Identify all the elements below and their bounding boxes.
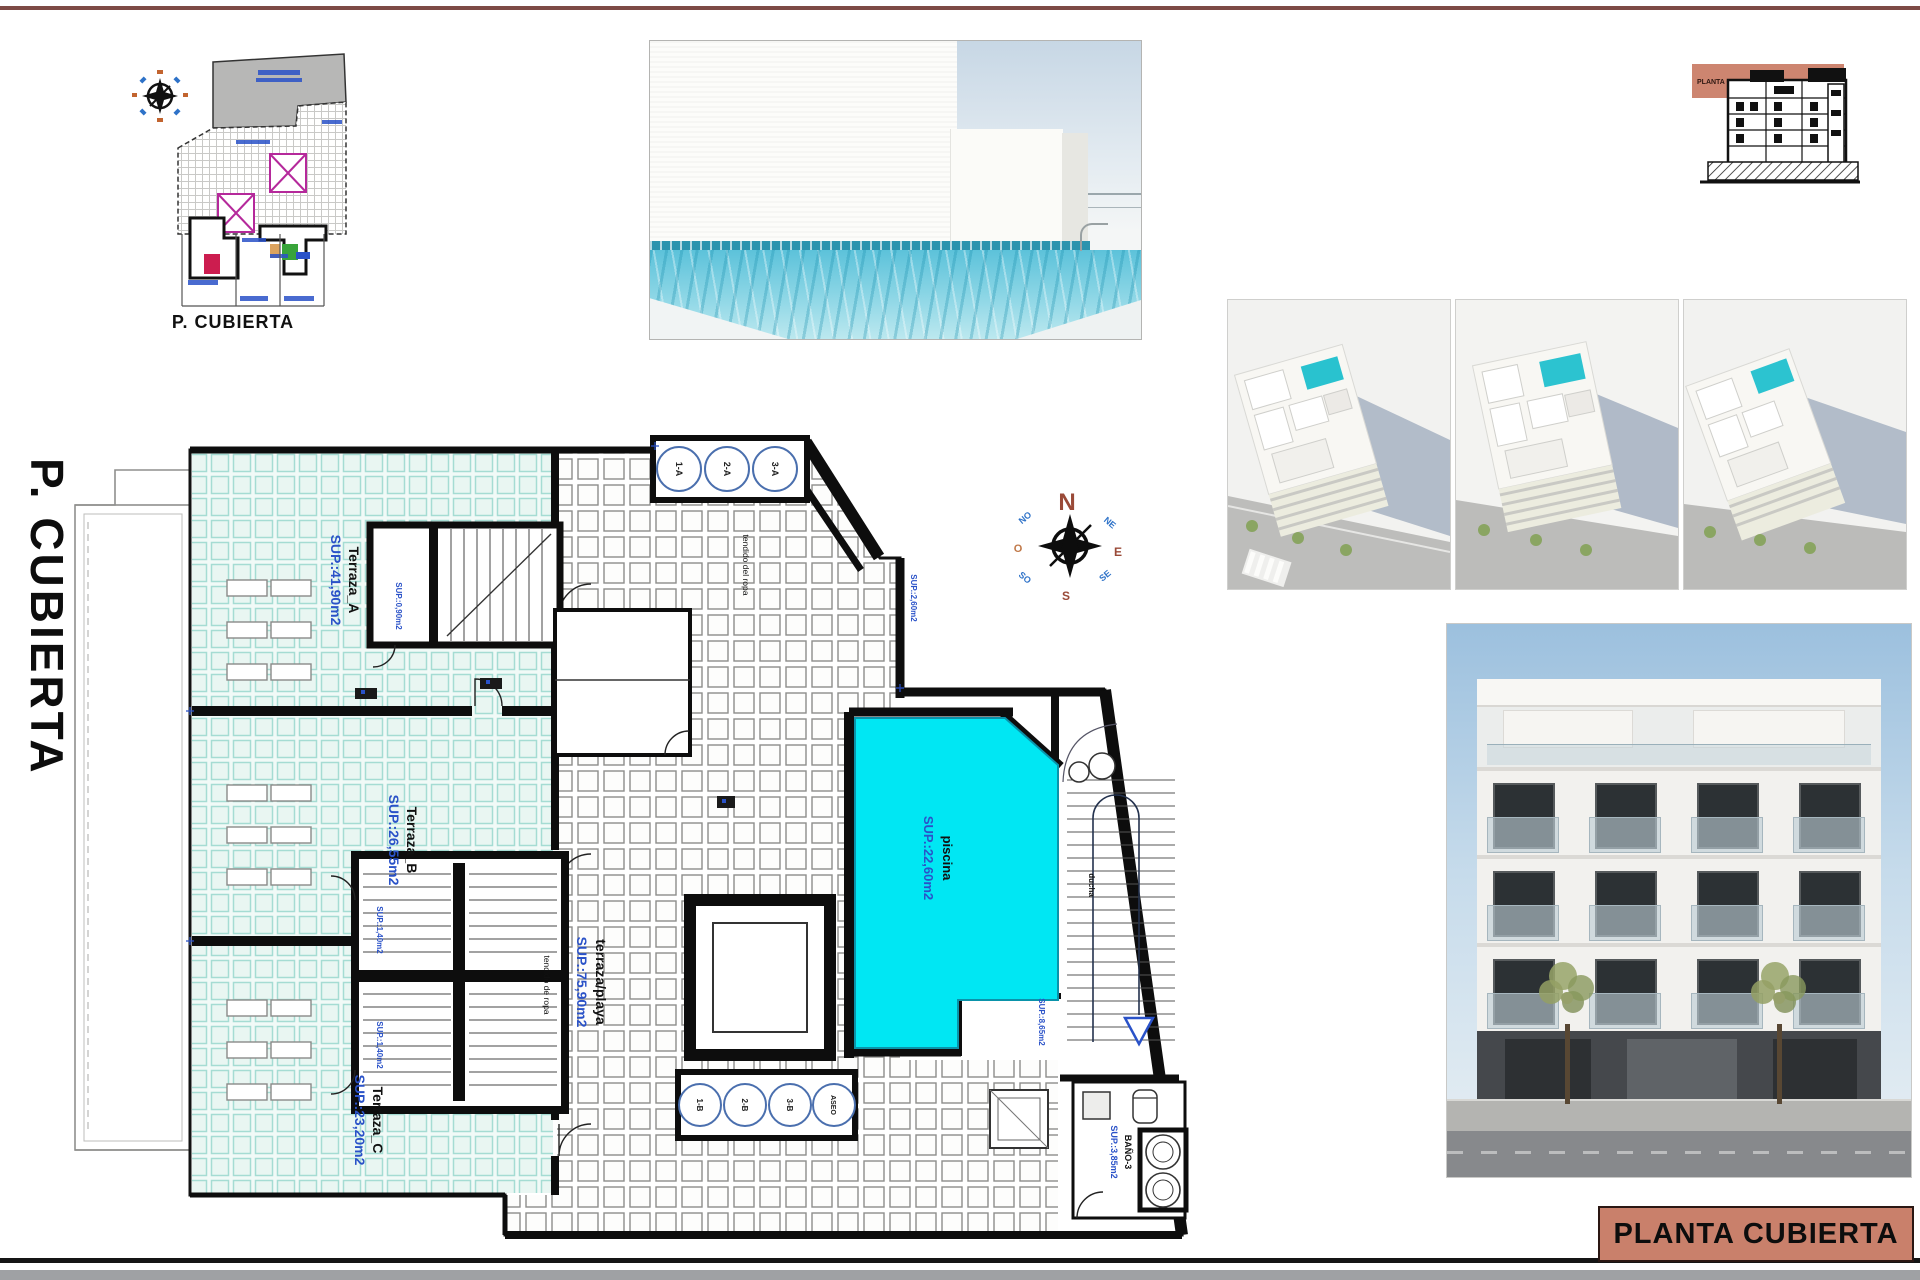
vent-circles-b: 1-B 2-B 3-B ASEO — [678, 1072, 855, 1138]
tree — [1777, 1024, 1782, 1104]
vent-label: 3-A — [770, 462, 780, 477]
svg-text:SUP.:75,90m2: SUP.:75,90m2 — [574, 937, 590, 1028]
svg-text:terraza/playa: terraza/playa — [593, 939, 609, 1025]
vent-label: 2-A — [722, 462, 732, 477]
stair-core-top: SUP.:0,90m2 — [370, 525, 560, 667]
top-border-rule — [0, 6, 1920, 10]
svg-text:SUP.:23,20m2: SUP.:23,20m2 — [352, 1075, 368, 1166]
render-white-wall — [650, 41, 957, 273]
vent-label: 1-B — [695, 1099, 704, 1112]
compass-ne-label: NE — [1102, 515, 1118, 531]
aerial-render-3 — [1683, 299, 1907, 590]
walkway-area-label: SUP.:2,60m2 — [909, 574, 918, 622]
svg-text:Terraza_B: Terraza_B — [404, 807, 420, 874]
tree-canopy — [1773, 992, 1785, 1004]
facade-floor-4 — [1477, 767, 1881, 859]
aerial-svg-3 — [1684, 300, 1906, 589]
stair-mid-upper-area-label: SUP.:1,40m2 — [375, 906, 384, 954]
facade-ground-floor — [1477, 1031, 1881, 1099]
pool-name-label: piscina — [940, 836, 955, 882]
bathroom: BAÑO-3 SUP.:3,85m2 — [1073, 1082, 1186, 1218]
shower-label: ducha — [1087, 873, 1096, 897]
aerial-svg-2 — [1456, 300, 1678, 589]
site-plan-caption: P. CUBIERTA — [118, 312, 348, 333]
stair-top-area-label: SUP.:0,90m2 — [394, 582, 403, 630]
facade-attic-railing — [1487, 744, 1871, 765]
render-stair-head-cube — [950, 129, 1063, 247]
svg-text:SUP.:26,55m2: SUP.:26,55m2 — [386, 795, 402, 886]
aerial-render-2 — [1455, 299, 1679, 590]
bottom-gray-bar — [0, 1270, 1920, 1280]
building-section-drawing: PLANTA CUBIERTA — [1690, 46, 1866, 188]
compass-north-label: N — [1058, 489, 1075, 516]
sheet-title: PLANTA CUBIERTA — [1613, 1218, 1898, 1251]
site-marker-blue — [296, 252, 310, 259]
compass-nw-label: NO — [1017, 510, 1034, 526]
pool: piscina SUP.:22,60m2 — [855, 718, 1058, 1048]
aerial-render-1 — [1227, 299, 1451, 590]
compass-rose: N S E O NO NE SO SE — [1014, 489, 1122, 603]
bathroom-area-label: SUP.:3,85m2 — [1109, 1125, 1119, 1178]
render-glass-rail — [1088, 193, 1141, 195]
facade-road — [1447, 1131, 1911, 1177]
drawing-sheet: { "sheet": { "margin_title": "P. CUBIERT… — [0, 0, 1920, 1280]
stair-mid-lower-area-label: SUP.:1,40m2 — [375, 1021, 384, 1069]
facade-attic-volume — [1693, 710, 1845, 748]
pool-area-label: SUP.:22,60m2 — [921, 816, 936, 900]
rooftop-pool-render — [649, 40, 1142, 340]
compass-east-label: E — [1114, 545, 1122, 559]
vent-label: ASEO — [829, 1095, 836, 1115]
roof-floor-plan: SUP.:0,90m2 SUP.:1,40m2 SUP.:1,40m2 1-A — [55, 430, 1190, 1245]
render-pool-waterline-tiles — [650, 241, 1090, 250]
section-svg: PLANTA CUBIERTA — [1690, 46, 1866, 188]
svg-text:Terraza_A: Terraza_A — [346, 547, 362, 614]
compass-se-label: SE — [1097, 568, 1113, 583]
render-pool-handrail — [1080, 223, 1108, 251]
facade-attic-volume — [1503, 710, 1633, 748]
compass-west-label: O — [1014, 543, 1023, 555]
skylight-box — [690, 900, 830, 1055]
site-marker-red — [204, 254, 220, 274]
stair-core-middle: SUP.:1,40m2 SUP.:1,40m2 — [331, 855, 565, 1110]
clothesline-top-label: tendido del ropa — [741, 535, 751, 596]
central-core — [555, 610, 690, 755]
facade-floor-3 — [1477, 855, 1881, 947]
svg-text:Terraza_C: Terraza_C — [370, 1087, 386, 1154]
vent-label: 3-B — [785, 1099, 794, 1112]
floor-plan-svg: SUP.:0,90m2 SUP.:1,40m2 SUP.:1,40m2 1-A — [55, 430, 1190, 1245]
street-facade-render — [1446, 623, 1912, 1178]
vent-circles-a: 1-A 2-A 3-A — [653, 438, 807, 500]
render-glass-rail-2 — [1088, 207, 1141, 208]
title-block: PLANTA CUBIERTA — [1598, 1206, 1914, 1262]
stair-right-area-label: SUP.:8,65m2 — [1037, 998, 1046, 1046]
tree-canopy — [1561, 992, 1573, 1004]
svg-text:SUP.:41,90m2: SUP.:41,90m2 — [328, 535, 344, 626]
parapet-outline — [75, 450, 190, 1150]
vent-label: 1-A — [674, 462, 684, 477]
facade-parapet — [1477, 679, 1881, 707]
compass-sw-label: SO — [1017, 570, 1033, 586]
clothesline-left-label: tendido de ropa — [542, 955, 552, 1014]
tree — [1565, 1024, 1570, 1104]
site-key-plan-drawing — [118, 48, 348, 310]
shower-tray — [990, 1090, 1048, 1148]
facade-floor-2 — [1477, 943, 1881, 1035]
facade-sidewalk — [1447, 1099, 1911, 1133]
bathroom-name-label: BAÑO-3 — [1123, 1135, 1133, 1170]
vent-label: 2-B — [740, 1099, 749, 1112]
compass-south-label: S — [1062, 589, 1070, 603]
site-compass-icon — [132, 70, 188, 122]
aerial-svg-1 — [1228, 300, 1450, 589]
site-key-plan — [118, 48, 348, 310]
